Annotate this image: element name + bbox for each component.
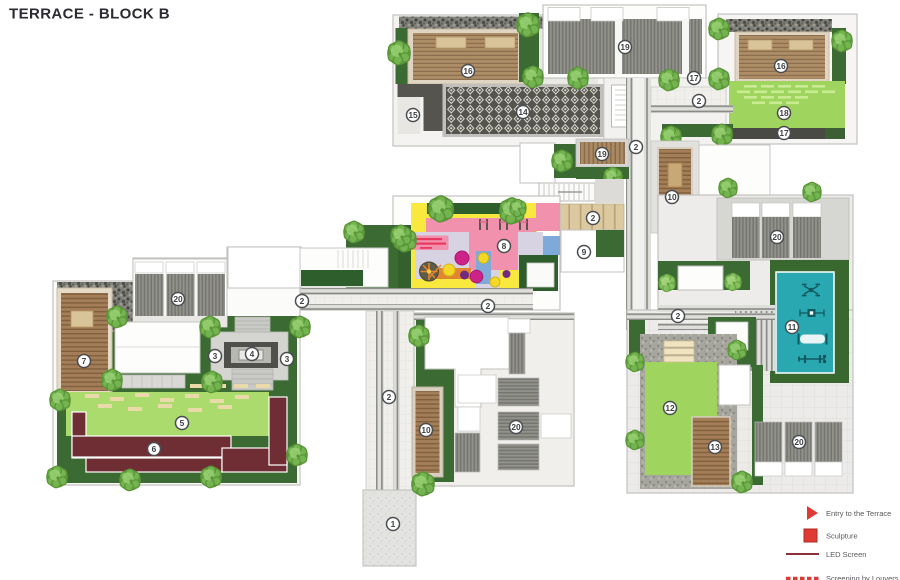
svg-text:2: 2	[634, 142, 639, 152]
svg-text:Sculpture: Sculpture	[826, 532, 858, 541]
svg-text:2: 2	[676, 311, 681, 321]
svg-text:16: 16	[463, 66, 473, 76]
svg-text:2: 2	[486, 301, 491, 311]
svg-text:19: 19	[597, 149, 607, 159]
svg-text:20: 20	[772, 232, 782, 242]
svg-text:16: 16	[776, 61, 786, 71]
svg-text:10: 10	[667, 192, 677, 202]
svg-text:11: 11	[788, 322, 797, 332]
svg-text:2: 2	[387, 392, 392, 402]
svg-text:TERRACE - BLOCK B: TERRACE - BLOCK B	[9, 6, 170, 23]
svg-text:5: 5	[180, 418, 185, 428]
svg-text:3: 3	[285, 354, 290, 364]
svg-text:2: 2	[697, 96, 702, 106]
svg-text:13: 13	[710, 442, 720, 452]
svg-text:19: 19	[620, 42, 630, 52]
svg-text:LED Screen: LED Screen	[826, 550, 866, 559]
svg-text:17: 17	[779, 128, 789, 138]
svg-text:20: 20	[794, 437, 804, 447]
svg-text:Screening by Louvers: Screening by Louvers	[826, 574, 899, 580]
svg-text:20: 20	[173, 294, 183, 304]
svg-text:14: 14	[518, 107, 528, 117]
svg-text:2: 2	[591, 213, 596, 223]
svg-text:10: 10	[421, 425, 431, 435]
svg-text:7: 7	[82, 356, 87, 366]
svg-text:17: 17	[689, 73, 699, 83]
svg-text:4: 4	[250, 349, 255, 359]
svg-text:9: 9	[582, 247, 587, 257]
svg-text:15: 15	[408, 110, 418, 120]
svg-text:Entry to the Terrace: Entry to the Terrace	[826, 509, 891, 518]
svg-text:3: 3	[213, 351, 218, 361]
svg-text:18: 18	[779, 108, 789, 118]
svg-text:2: 2	[300, 296, 305, 306]
svg-text:8: 8	[502, 241, 507, 251]
svg-text:1: 1	[391, 519, 396, 529]
svg-text:12: 12	[665, 403, 675, 413]
svg-text:20: 20	[511, 422, 521, 432]
svg-text:6: 6	[152, 444, 157, 454]
